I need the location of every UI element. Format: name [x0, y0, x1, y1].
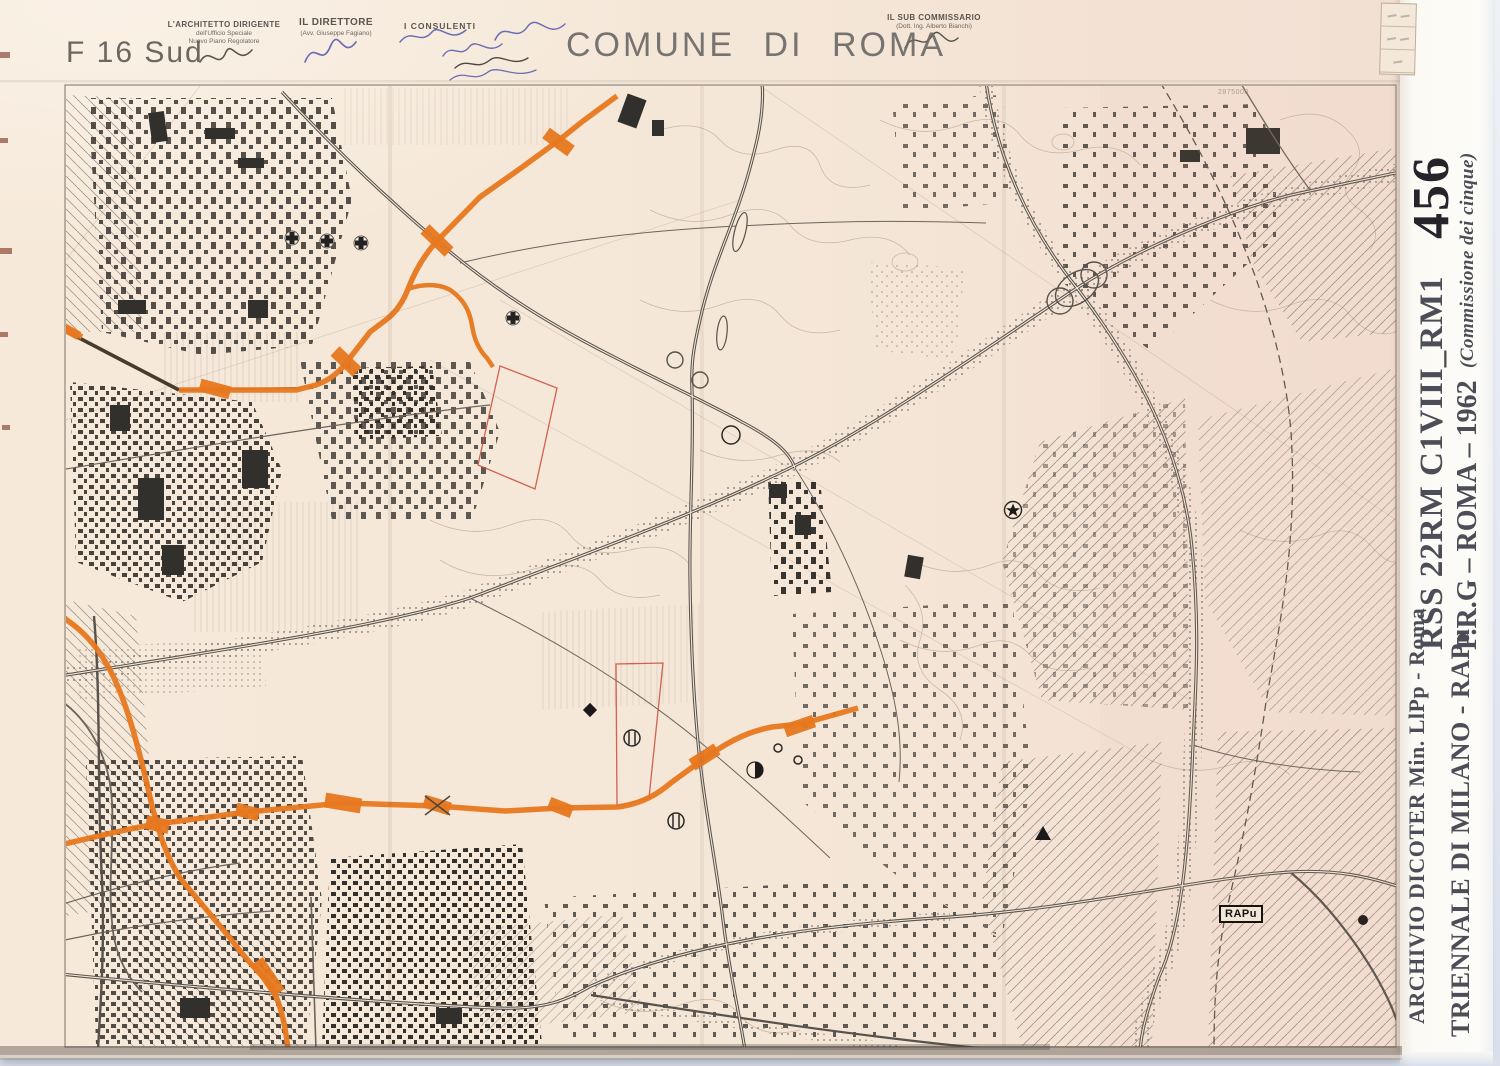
- collection-label-vertical: TRIENNALE DI MILANO - RAPu: [1446, 635, 1486, 1037]
- architect-office: dell'Ufficio Speciale: [160, 30, 288, 38]
- architect-block: L'ARCHITETTO DIRIGENTE dell'Ufficio Spec…: [160, 20, 288, 46]
- director-title: IL DIRETTORE: [288, 17, 384, 30]
- plan-note: (Commissione dei cinque): [1457, 153, 1478, 369]
- signature-consultant-3: [443, 44, 502, 56]
- director-block: IL DIRETTORE (Avv. Giuseppe Fagiano): [288, 17, 384, 38]
- page-title: COMUNE DI ROMA: [566, 26, 946, 65]
- plan-label-vertical: P.R.G – ROMA – 1962(Commissione dei cinq…: [1452, 95, 1490, 650]
- subcommissioner-name: (Dott. Ing. Alberto Bianchi): [876, 23, 992, 31]
- signature-consultant-4: [455, 58, 528, 68]
- map-graphic: 2875000: [0, 0, 1500, 1066]
- consultants-title: I CONSULENTI: [398, 21, 482, 32]
- catalog-code: RSS 22RM C1VIII_RM1: [1414, 275, 1450, 650]
- star-symbol: [1005, 502, 1022, 519]
- scanned-map-sheet: 2875000 F 16 Sud COMUNE DI ROMA L'ARCHIT…: [0, 0, 1500, 1066]
- plan-label: P.R.G – ROMA – 1962: [1452, 380, 1483, 650]
- architect-plan: Nuovo Piano Regolatore: [160, 38, 288, 46]
- rapu-stamp: RAPu: [1219, 905, 1263, 923]
- table-row: [1381, 4, 1416, 28]
- architect-title: L'ARCHITETTO DIRIGENTE: [160, 20, 288, 30]
- signature-architect: [200, 49, 252, 62]
- consultants-block: I CONSULENTI: [398, 21, 482, 32]
- signature-consultant-5: [450, 70, 536, 80]
- catalog-code-vertical: RSS 22RM C1VIII_RM1456: [1402, 60, 1448, 650]
- director-name: (Avv. Giuseppe Fagiano): [288, 30, 384, 38]
- subcommissioner-title: IL SUB COMMISSARIO: [876, 13, 992, 23]
- scan-edge-marks: [0, 52, 12, 430]
- signature-director: [305, 39, 356, 62]
- table-row: [1381, 27, 1416, 51]
- archive-label-vertical: ARCHIVIO DICOTER Min. LlPp - Roma: [1404, 628, 1438, 1024]
- subcommissioner-block: IL SUB COMMISSARIO (Dott. Ing. Alberto B…: [876, 13, 992, 31]
- coordinate-label: 2875000: [1218, 89, 1249, 96]
- signature-consultant-2: [495, 22, 565, 40]
